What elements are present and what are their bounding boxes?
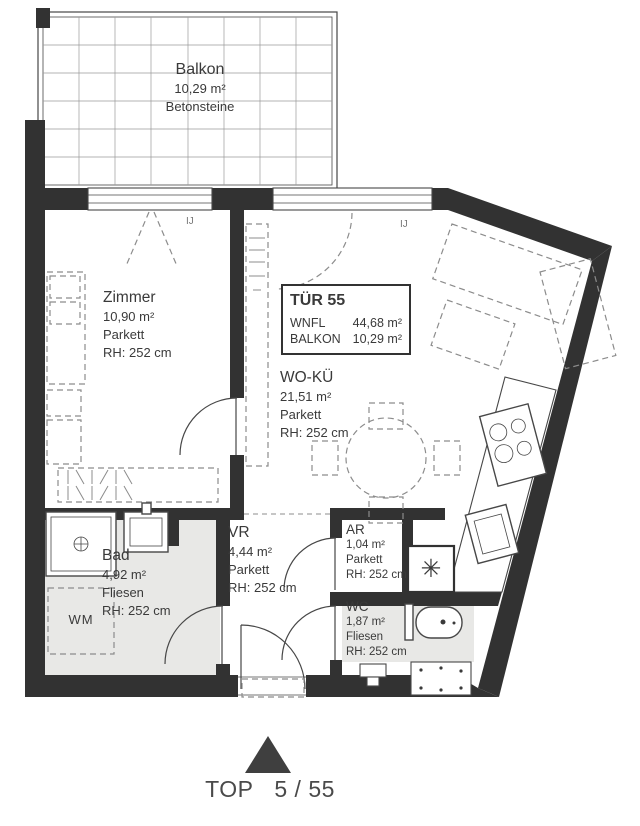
room-label-bad: Bad 4,92 m² Fliesen RH: 252 cm xyxy=(102,546,171,620)
room-height: RH: 252 cm xyxy=(346,645,407,660)
window-wohnkueche xyxy=(273,188,432,210)
top-marker-triangle-icon xyxy=(245,736,291,773)
room-name: AR xyxy=(346,521,407,538)
room-floor: Parkett xyxy=(346,553,407,568)
room-floor: Fliesen xyxy=(102,584,171,602)
washing-machine-label: WM xyxy=(48,612,114,627)
room-area: 1,04 m² xyxy=(346,538,407,553)
room-name: VR xyxy=(228,523,297,543)
window-zimmer xyxy=(88,188,212,210)
room-name: WO-KÜ xyxy=(280,368,349,388)
balcony-name: Balkon xyxy=(140,60,260,80)
unit-row-label: WNFL xyxy=(290,315,325,331)
room-label-wc: WC 1,87 m² Fliesen RH: 252 cm xyxy=(346,598,407,660)
room-height: RH: 252 cm xyxy=(280,424,349,442)
room-label-zimmer: Zimmer 10,90 m² Parkett RH: 252 cm xyxy=(103,288,172,362)
room-area: 1,87 m² xyxy=(346,615,407,630)
room-height: RH: 252 cm xyxy=(103,344,172,362)
balcony-door-swing-wohnkueche xyxy=(277,213,352,289)
unit-row-value: 10,29 m² xyxy=(353,331,402,347)
window-tag-1: IJ xyxy=(186,216,194,227)
door-zimmer xyxy=(180,398,237,455)
room-area: 21,51 m² xyxy=(280,388,349,406)
balcony-area: 10,29 m² xyxy=(140,80,260,98)
window-tag-2: IJ xyxy=(400,219,408,230)
unit-footer: TOP 5 / 55 xyxy=(150,776,390,803)
unit-row-value: 44,68 m² xyxy=(353,315,402,331)
footer-unit-number: 5 / 55 xyxy=(274,776,335,802)
room-label-vr: VR 4,44 m² Parkett RH: 252 cm xyxy=(228,523,297,597)
balcony-label: Balkon 10,29 m² Betonsteine xyxy=(140,60,260,116)
shaft-symbol: ✳ xyxy=(408,546,454,592)
door-wc xyxy=(282,606,336,660)
balcony-door-swing-zimmer xyxy=(126,212,177,266)
room-area: 4,44 m² xyxy=(228,543,297,561)
room-area: 10,90 m² xyxy=(103,308,172,326)
room-label-ar: AR 1,04 m² Parkett RH: 252 cm xyxy=(346,521,407,583)
floor-plan: Balkon 10,29 m² Betonsteine Zimmer 10,90… xyxy=(0,0,640,826)
entry-door xyxy=(238,625,306,697)
unit-row-label: BALKON xyxy=(290,331,341,347)
room-height: RH: 252 cm xyxy=(346,568,407,583)
room-name: WC xyxy=(346,598,407,615)
wardrobe xyxy=(58,468,218,502)
bed xyxy=(47,272,85,464)
room-name: Zimmer xyxy=(103,288,172,308)
room-area: 4,92 m² xyxy=(102,566,171,584)
toilet xyxy=(405,604,462,640)
footer-top-label: TOP xyxy=(205,776,253,802)
meter-box xyxy=(411,662,471,695)
room-floor: Fliesen xyxy=(346,630,407,645)
shelf-wohnkueche xyxy=(246,224,268,466)
room-floor: Parkett xyxy=(280,406,349,424)
unit-row-wnfl: WNFL 44,68 m² xyxy=(290,315,402,331)
room-floor: Parkett xyxy=(228,561,297,579)
room-height: RH: 252 cm xyxy=(228,579,297,597)
room-name: Bad xyxy=(102,546,171,566)
unit-row-balkon: BALKON 10,29 m² xyxy=(290,331,402,347)
unit-info-box: TÜR 55 WNFL 44,68 m² BALKON 10,29 m² xyxy=(281,284,411,355)
balcony-material: Betonsteine xyxy=(140,98,260,116)
room-label-wohnkueche: WO-KÜ 21,51 m² Parkett RH: 252 cm xyxy=(280,368,349,442)
unit-door-label: TÜR 55 xyxy=(290,291,402,311)
room-floor: Parkett xyxy=(103,326,172,344)
